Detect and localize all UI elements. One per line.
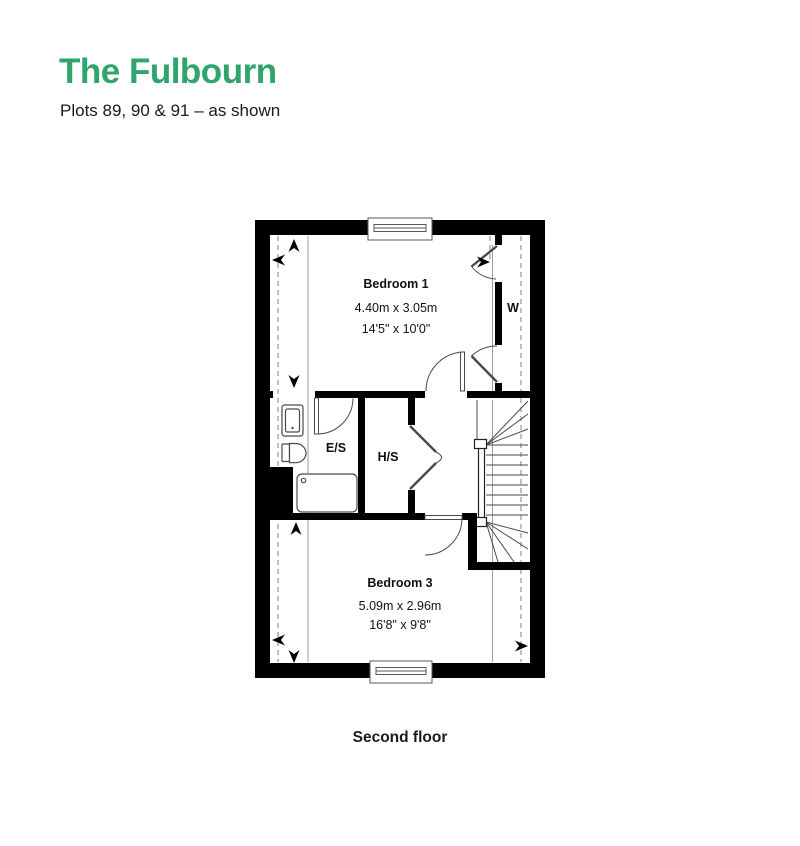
room-ensuite-label: E/S	[306, 441, 366, 455]
room-dim-imperial: 16'8" x 9'8"	[300, 618, 500, 632]
wall-mass	[255, 467, 293, 513]
stair-wall-left	[468, 513, 477, 570]
room-dim-metric: 4.40m x 3.05m	[296, 301, 496, 315]
shower-icon	[297, 474, 357, 512]
door-store-bifold	[410, 426, 442, 489]
room-wardrobe-label: W	[502, 301, 524, 315]
floorplan-canvas	[0, 0, 800, 846]
door-bedroom1	[426, 352, 465, 391]
sink-icon	[282, 405, 303, 436]
wardrobe-wall	[495, 235, 502, 245]
toilet-icon	[282, 444, 306, 463]
arrow-down-icon	[289, 375, 300, 388]
arrow-up-icon	[291, 522, 302, 535]
room-bedroom3-label: Bedroom 3 5.09m x 2.96m 16'8" x 9'8"	[300, 576, 500, 632]
window-bottom	[370, 661, 432, 683]
window-top	[368, 218, 432, 240]
door-bedroom3	[425, 516, 462, 556]
room-store-label: H/S	[366, 450, 410, 464]
floor-caption: Second floor	[300, 729, 500, 747]
stair-wall-bottom	[468, 562, 545, 570]
arrow-down-icon	[289, 650, 300, 663]
room-name: Bedroom 3	[300, 576, 500, 590]
door-wardrobe-bottom	[472, 346, 498, 382]
room-bedroom1-label: Bedroom 1 4.40m x 3.05m 14'5" x 10'0"	[296, 277, 496, 336]
ensuite-fixtures	[282, 405, 357, 512]
room-dim-metric: 5.09m x 2.96m	[300, 599, 500, 613]
wall-left	[255, 220, 270, 678]
wall-right	[530, 220, 545, 678]
wardrobe-wall	[495, 383, 502, 391]
door-ensuite	[315, 398, 354, 434]
room-name: Bedroom 1	[296, 277, 496, 291]
arrow-up-icon	[289, 239, 300, 252]
page: { "page": { "title": "The Fulbourn", "su…	[0, 0, 800, 846]
wardrobe-wall	[495, 282, 502, 345]
room-dim-imperial: 14'5" x 10'0"	[296, 322, 496, 336]
